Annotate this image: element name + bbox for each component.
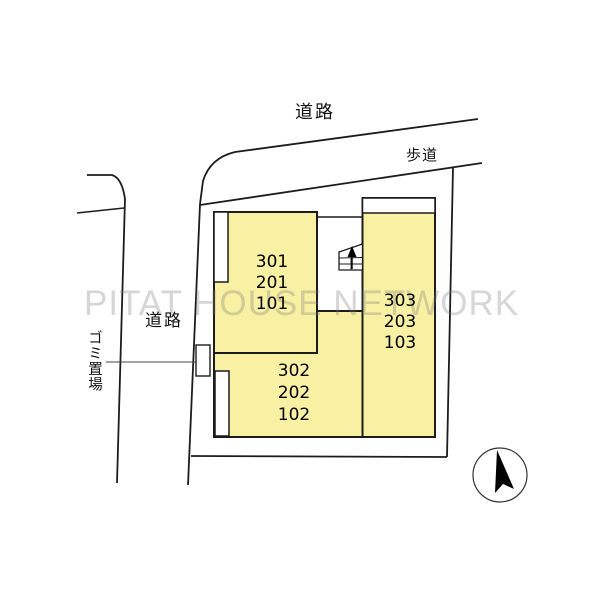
unit-number: 301 (244, 252, 300, 273)
unit-number: 103 (372, 333, 428, 354)
unit-number: 203 (372, 312, 428, 333)
property-south-boundary-line (191, 456, 447, 457)
building-block-b-entry-notch (215, 371, 229, 436)
unit-numbers-block-c: 303 203 103 (372, 291, 428, 354)
north-compass-icon (473, 448, 527, 502)
unit-number: 202 (266, 382, 322, 404)
sidewalk-edge-line (200, 163, 482, 205)
building-block-c-top-strip (363, 198, 436, 213)
unit-number: 101 (244, 294, 300, 315)
label-road-top: 道路 (280, 98, 350, 124)
label-sidewalk: 歩道 (392, 144, 452, 165)
building-block-a-entry-notch (214, 212, 228, 282)
unit-numbers-block-a: 301 201 101 (244, 252, 300, 315)
unit-numbers-block-b: 302 202 102 (266, 360, 322, 426)
left-road-west-edge-line (87, 175, 125, 483)
label-garbage-area: ゴミ置場 (85, 330, 103, 392)
property-east-boundary-line (447, 168, 453, 457)
unit-number: 102 (266, 404, 322, 426)
garbage-area-box (196, 345, 210, 376)
site-plan: PITAT HOUSE NETWORK 道路 歩道 道路 ゴミ置場 301 20… (0, 0, 600, 600)
site-plan-drawing (0, 0, 600, 600)
staircase-up-icon (339, 244, 363, 270)
unit-number: 201 (244, 273, 300, 294)
label-road-left: 道路 (130, 306, 198, 331)
left-road-branch-line (77, 208, 124, 213)
unit-number: 303 (372, 291, 428, 312)
unit-number: 302 (266, 360, 322, 382)
